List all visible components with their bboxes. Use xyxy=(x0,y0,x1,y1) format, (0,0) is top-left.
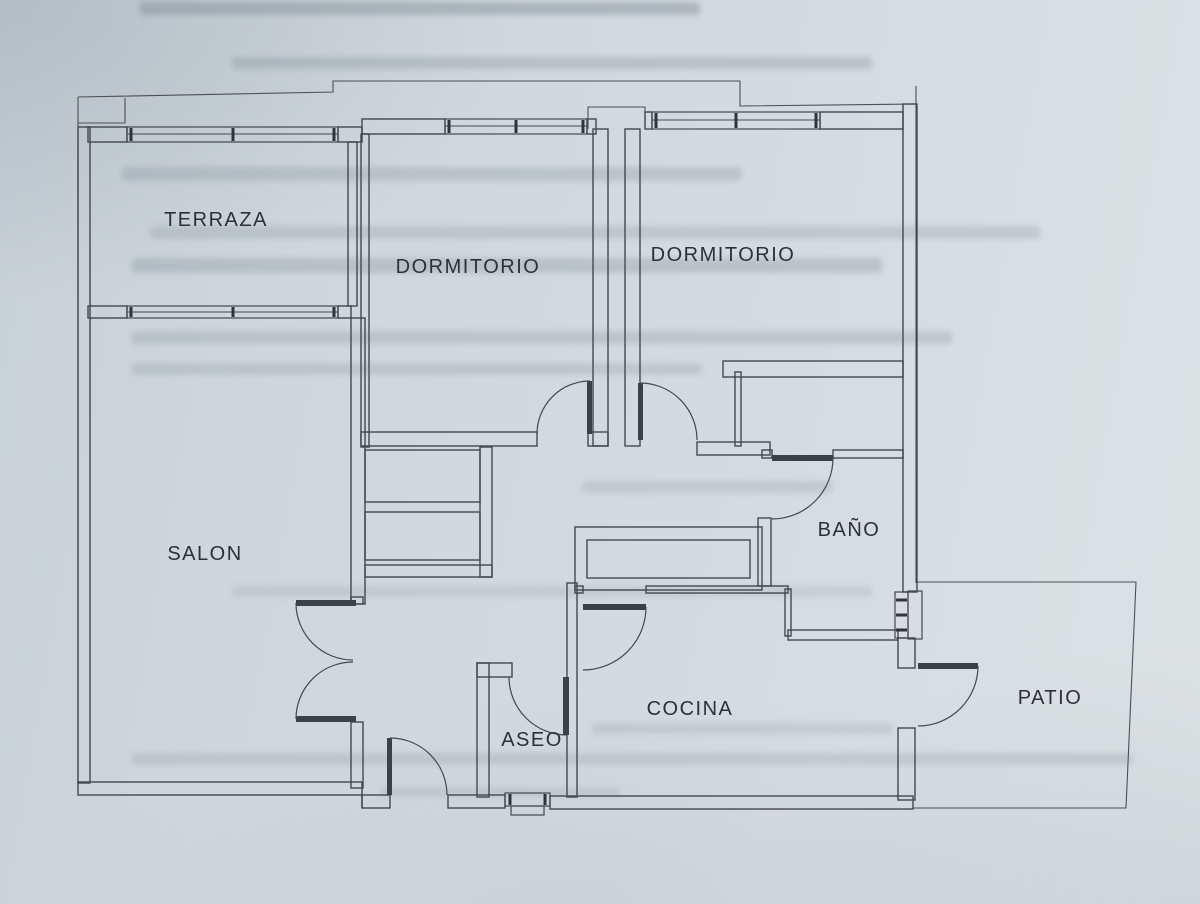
room-label-dormitorio-1: DORMITORIO xyxy=(396,256,541,278)
room-label-cocina: COCINA xyxy=(647,698,734,720)
salon-double-door xyxy=(296,600,356,722)
room-label-bano: BAÑO xyxy=(818,517,881,541)
dormitorio-2-door xyxy=(638,383,697,440)
scanned-floor-plan-page: TERRAZA DORMITORIO DORMITORIO SALON BAÑO… xyxy=(0,0,1200,904)
outer-boundary-lines xyxy=(78,81,916,786)
patio-door xyxy=(918,663,978,726)
dormitorio-1-window xyxy=(445,119,587,134)
room-label-aseo: ASEO xyxy=(501,729,563,751)
aseo-bottom-window xyxy=(505,793,550,815)
dormitorio-1-door xyxy=(537,381,592,434)
aseo-door xyxy=(509,677,569,735)
doors xyxy=(296,381,978,795)
bano-side-window xyxy=(895,591,922,639)
room-label-dormitorio-2: DORMITORIO xyxy=(651,244,796,266)
terraza-top-window xyxy=(127,127,338,142)
entrance-door xyxy=(387,738,447,795)
cocina-door xyxy=(583,604,646,670)
dormitorio-2-window xyxy=(652,112,820,129)
bano-door xyxy=(772,455,833,519)
room-labels: TERRAZA DORMITORIO DORMITORIO SALON BAÑO… xyxy=(164,209,1082,751)
room-label-terraza: TERRAZA xyxy=(164,209,268,231)
room-label-salon: SALON xyxy=(167,543,242,565)
room-label-patio: PATIO xyxy=(1018,687,1083,709)
terraza-salon-window xyxy=(127,306,338,318)
floor-plan-drawing: TERRAZA DORMITORIO DORMITORIO SALON BAÑO… xyxy=(0,0,1200,904)
